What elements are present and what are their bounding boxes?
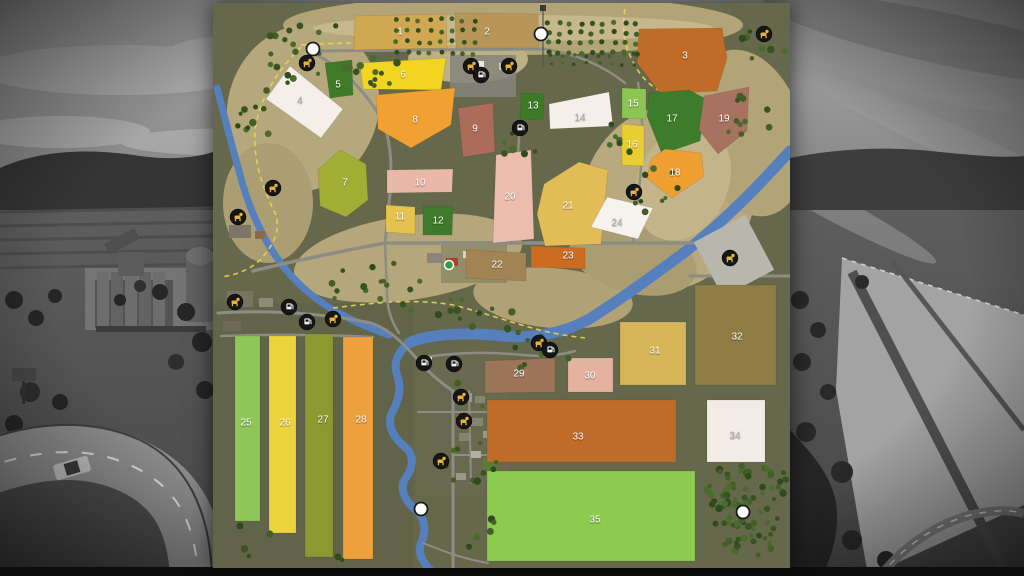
field-28[interactable] xyxy=(343,337,373,559)
orchard-tree xyxy=(633,63,637,67)
tree xyxy=(241,545,248,552)
tree xyxy=(239,112,243,116)
tree xyxy=(459,297,465,303)
orchard-tree xyxy=(450,16,455,21)
tree xyxy=(738,463,745,470)
tree xyxy=(525,338,530,343)
tree xyxy=(718,469,723,474)
tree xyxy=(282,37,287,42)
orchard-tree xyxy=(460,51,465,56)
orchard-tree xyxy=(462,40,467,45)
orchard-tree xyxy=(427,41,432,46)
tree xyxy=(741,535,747,541)
building xyxy=(471,451,481,458)
tree xyxy=(739,131,745,137)
orchard-tree xyxy=(597,54,601,58)
tree xyxy=(756,533,762,539)
orchard-tree xyxy=(470,52,475,57)
tree xyxy=(476,310,482,316)
orchard-tree xyxy=(473,19,478,24)
animal-pen-icon[interactable] xyxy=(265,180,281,196)
tree xyxy=(765,520,771,526)
road xyxy=(308,49,545,51)
orchard-tree xyxy=(555,51,560,56)
orchard-tree xyxy=(620,63,624,67)
service-station-icon[interactable] xyxy=(446,356,462,372)
orchard-tree xyxy=(599,39,604,44)
orchard-tree xyxy=(610,62,614,66)
orchard-tree xyxy=(561,54,565,58)
orchard-tree xyxy=(405,17,410,22)
building xyxy=(456,473,466,480)
tree xyxy=(617,140,623,146)
orchard-tree xyxy=(613,40,618,45)
tree xyxy=(504,325,512,333)
tree xyxy=(455,446,460,451)
field-27[interactable] xyxy=(305,334,333,557)
orchard-tree xyxy=(590,21,595,26)
tree xyxy=(490,306,495,311)
tree xyxy=(372,69,378,75)
tree xyxy=(369,264,375,270)
building xyxy=(229,225,251,238)
field-label-16: 16 xyxy=(626,140,638,151)
tree xyxy=(297,22,304,29)
orchard-tree xyxy=(394,50,399,55)
building xyxy=(223,321,241,331)
orchard-tree xyxy=(459,19,464,24)
tree xyxy=(758,510,763,515)
orchard-tree xyxy=(588,31,593,36)
orchard-tree xyxy=(634,32,639,37)
tree xyxy=(332,296,337,301)
orchard-tree xyxy=(450,51,455,56)
tree xyxy=(334,288,339,293)
tree xyxy=(766,124,773,131)
field-label-35: 35 xyxy=(589,515,601,526)
tree xyxy=(508,308,515,315)
field-label-21: 21 xyxy=(562,201,574,212)
orchard-tree xyxy=(610,49,615,54)
tree xyxy=(764,506,770,512)
orchard-tree xyxy=(549,53,553,57)
tree xyxy=(776,484,781,489)
tree xyxy=(715,505,723,513)
field-label-34: 34 xyxy=(729,431,741,442)
tree xyxy=(494,460,498,464)
tree xyxy=(734,541,738,545)
tree xyxy=(268,51,273,56)
field-label-17: 17 xyxy=(666,114,678,125)
orchard-tree xyxy=(438,39,443,44)
orchard-tree xyxy=(633,42,638,47)
tree xyxy=(777,479,783,485)
service-station-icon[interactable] xyxy=(473,67,489,83)
field-label-25: 25 xyxy=(240,418,252,429)
field-label-26: 26 xyxy=(279,418,291,429)
orchard-tree xyxy=(561,61,565,65)
field-label-19: 19 xyxy=(718,114,730,125)
tree xyxy=(265,130,272,137)
tree xyxy=(447,308,453,314)
tree xyxy=(749,533,753,537)
tree xyxy=(408,307,414,313)
tree xyxy=(333,23,338,28)
tree xyxy=(236,522,243,529)
orchard-tree xyxy=(608,55,612,59)
tree xyxy=(458,316,462,320)
tree xyxy=(742,119,748,125)
tree xyxy=(360,283,367,290)
tree xyxy=(642,172,648,178)
tree xyxy=(469,323,476,330)
animal-pen-icon[interactable] xyxy=(227,294,243,310)
service-station-icon[interactable] xyxy=(299,314,315,330)
tree xyxy=(285,80,290,85)
field-label-30: 30 xyxy=(584,371,596,382)
tree xyxy=(417,279,422,284)
field-label-31: 31 xyxy=(649,346,661,357)
orchard-tree xyxy=(599,29,604,34)
orchard-tree xyxy=(450,38,455,43)
orchard-tree xyxy=(472,27,477,32)
field-23[interactable] xyxy=(531,246,585,269)
tree xyxy=(707,491,711,495)
tree xyxy=(711,498,717,504)
animal-pen-icon[interactable] xyxy=(456,413,472,429)
service-station-icon[interactable] xyxy=(512,120,528,136)
orchard-tree xyxy=(572,62,576,66)
animal-pen-icon[interactable] xyxy=(433,453,449,469)
tree xyxy=(379,71,384,76)
orchard-tree xyxy=(567,40,572,45)
orchard-tree xyxy=(566,50,571,55)
field-label-22: 22 xyxy=(491,260,503,271)
orchard-tree xyxy=(578,40,583,45)
orchard-tree xyxy=(405,28,410,33)
tree xyxy=(487,528,494,535)
orchard-tree xyxy=(417,41,422,46)
orchard-tree xyxy=(573,53,577,57)
tree xyxy=(708,484,712,488)
tree xyxy=(466,544,472,550)
tree xyxy=(726,130,731,135)
tree xyxy=(759,484,765,490)
tree xyxy=(726,538,733,545)
tree xyxy=(491,466,497,472)
tree xyxy=(387,81,392,86)
orchard-tree xyxy=(566,21,571,26)
tree xyxy=(751,538,757,544)
orchard-tree xyxy=(556,39,561,44)
orchard-tree xyxy=(426,51,431,56)
tree xyxy=(509,146,516,153)
tree xyxy=(639,199,644,204)
orchard-tree xyxy=(440,50,445,55)
poi-marker-icon[interactable] xyxy=(737,506,750,519)
tree xyxy=(533,149,538,154)
service-station-icon[interactable] xyxy=(416,355,432,371)
tree xyxy=(473,533,480,540)
orchard-tree xyxy=(416,28,421,33)
tree xyxy=(453,306,461,314)
map-svg: 1234567891011121314151617181920212223242… xyxy=(213,3,790,568)
tree xyxy=(263,87,270,94)
tree xyxy=(756,552,761,557)
field-label-9: 9 xyxy=(472,124,478,135)
tree xyxy=(608,122,614,128)
tree xyxy=(726,476,731,481)
tree xyxy=(723,492,730,499)
tree xyxy=(512,345,518,351)
tree xyxy=(607,142,613,148)
orchard-tree xyxy=(600,22,605,27)
poi-marker-icon[interactable] xyxy=(307,43,320,56)
tree xyxy=(368,80,373,85)
building xyxy=(259,298,273,307)
field-label-32: 32 xyxy=(731,332,743,343)
field-label-5: 5 xyxy=(335,80,341,91)
animal-pen-icon[interactable] xyxy=(299,55,315,71)
tree xyxy=(286,27,292,33)
animal-pen-icon[interactable] xyxy=(626,184,642,200)
tree xyxy=(346,65,353,72)
tree xyxy=(633,201,638,206)
orchard-tree xyxy=(558,20,563,25)
tree xyxy=(738,122,743,127)
tree xyxy=(503,140,507,144)
field-label-3: 3 xyxy=(682,51,688,62)
tree xyxy=(767,46,774,53)
tree xyxy=(454,380,461,387)
tree xyxy=(273,64,280,71)
tree xyxy=(782,48,788,54)
tree xyxy=(292,49,298,55)
tree xyxy=(650,165,657,172)
field-label-15: 15 xyxy=(627,99,639,110)
tree xyxy=(246,125,251,130)
field-label-12: 12 xyxy=(432,216,444,227)
tree xyxy=(316,29,322,35)
tree xyxy=(771,525,777,531)
orchard-tree xyxy=(578,29,583,34)
tree xyxy=(284,72,291,79)
tree xyxy=(235,123,240,128)
animal-pen-icon[interactable] xyxy=(756,26,772,42)
animal-pen-icon[interactable] xyxy=(325,311,341,327)
orchard-tree xyxy=(632,52,636,56)
tree xyxy=(745,473,752,480)
tree xyxy=(713,521,719,527)
tree xyxy=(759,45,766,52)
tree xyxy=(772,497,776,501)
field-label-20: 20 xyxy=(504,192,516,203)
tree xyxy=(781,470,786,475)
orchard-tree xyxy=(635,52,640,57)
tree xyxy=(501,150,508,157)
tree xyxy=(340,558,345,563)
tree xyxy=(356,62,364,70)
tree xyxy=(316,72,320,76)
tree xyxy=(480,470,486,476)
orchard-tree xyxy=(557,32,562,37)
building xyxy=(255,231,265,239)
tree xyxy=(391,261,396,266)
tree xyxy=(660,199,664,203)
building xyxy=(475,396,485,403)
field-label-8: 8 xyxy=(412,115,418,126)
orchard-tree xyxy=(407,49,412,54)
orchard-tree xyxy=(405,38,410,43)
poi-marker-icon[interactable] xyxy=(415,503,428,516)
building xyxy=(427,253,443,263)
tree xyxy=(372,77,377,82)
orchard-tree xyxy=(393,39,398,44)
orchard-tree xyxy=(429,28,434,33)
tree xyxy=(449,297,453,301)
tree xyxy=(515,330,521,336)
field-label-13: 13 xyxy=(527,101,539,112)
tree xyxy=(767,471,774,478)
tree xyxy=(763,536,768,541)
tree xyxy=(768,532,773,537)
tree xyxy=(769,485,774,490)
orchard-tree xyxy=(415,19,420,24)
tree xyxy=(474,477,481,484)
orchard-tree xyxy=(622,40,627,45)
orchard-tree xyxy=(473,40,478,45)
orchard-tree xyxy=(579,51,584,56)
tree xyxy=(751,520,757,526)
tree xyxy=(393,59,401,67)
start-marker-icon[interactable] xyxy=(445,261,454,270)
tree xyxy=(782,476,789,483)
orchard-tree xyxy=(568,30,573,35)
tree xyxy=(400,302,406,308)
tree xyxy=(369,55,376,62)
tree xyxy=(435,311,442,318)
field-label-33: 33 xyxy=(572,432,584,443)
tree xyxy=(353,68,360,75)
field-2[interactable] xyxy=(455,13,539,48)
field-label-24: 24 xyxy=(611,218,623,229)
field-label-28: 28 xyxy=(355,415,367,426)
field-label-2: 2 xyxy=(484,27,490,38)
tree xyxy=(241,106,248,113)
tree xyxy=(451,477,456,482)
service-station-icon[interactable] xyxy=(542,342,558,358)
tree xyxy=(247,554,251,558)
building xyxy=(459,433,469,441)
tree xyxy=(384,282,389,287)
tree xyxy=(735,98,740,103)
field-label-27: 27 xyxy=(317,415,329,426)
tree xyxy=(372,83,377,88)
field-label-10: 10 xyxy=(414,178,426,189)
tree xyxy=(267,32,274,39)
service-station-icon[interactable] xyxy=(281,299,297,315)
poi-marker-icon[interactable] xyxy=(535,28,548,41)
orchard-tree xyxy=(545,20,550,25)
orchard-tree xyxy=(598,61,602,65)
background-bottom-strip xyxy=(0,567,1024,576)
orchard-tree xyxy=(439,30,444,35)
field-label-7: 7 xyxy=(342,178,348,189)
tree xyxy=(775,516,780,521)
tree xyxy=(733,497,738,502)
tree xyxy=(739,35,746,42)
tree xyxy=(642,208,649,215)
tree xyxy=(740,95,747,102)
tree xyxy=(407,286,413,292)
farm-map-overlay: 1234567891011121314151617181920212223242… xyxy=(213,3,790,568)
orchard-tree xyxy=(624,20,629,25)
orchard-tree xyxy=(450,29,455,34)
tree xyxy=(379,279,383,283)
tree xyxy=(290,41,296,47)
tree xyxy=(565,355,571,361)
tree xyxy=(725,472,730,477)
field-label-29: 29 xyxy=(513,369,525,380)
tree xyxy=(780,490,787,497)
orchard-tree xyxy=(439,16,444,21)
tree xyxy=(253,105,258,110)
orchard-tree xyxy=(585,61,589,65)
animal-pen-icon[interactable] xyxy=(453,389,469,405)
orchard-tree xyxy=(428,17,433,22)
tree xyxy=(249,119,256,126)
orchard-tree xyxy=(460,28,465,33)
powerline-pole xyxy=(540,5,546,11)
field-label-18: 18 xyxy=(669,168,681,179)
tree xyxy=(727,515,733,521)
orchard-tree xyxy=(546,39,551,44)
tree xyxy=(751,527,755,531)
tree xyxy=(750,56,755,61)
tree xyxy=(521,150,528,157)
orchard-tree xyxy=(550,62,554,66)
screenshot-root: 1234567891011121314151617181920212223242… xyxy=(0,0,1024,576)
tree xyxy=(722,500,728,506)
orchard-tree xyxy=(633,21,638,26)
field-label-1: 1 xyxy=(397,27,403,38)
orchard-tree xyxy=(599,50,604,55)
tree xyxy=(268,62,273,67)
orchard-tree xyxy=(394,17,399,22)
tree xyxy=(726,483,733,490)
orchard-tree xyxy=(624,31,629,36)
tree xyxy=(675,185,681,191)
tree xyxy=(750,495,756,501)
orchard-tree xyxy=(590,50,595,55)
animal-pen-icon[interactable] xyxy=(230,209,246,225)
tree xyxy=(266,530,273,537)
field-25[interactable] xyxy=(235,336,260,521)
field-26[interactable] xyxy=(269,336,296,533)
orchard-tree xyxy=(623,53,627,57)
animal-pen-icon[interactable] xyxy=(501,58,517,74)
tree xyxy=(760,491,765,496)
field-label-11: 11 xyxy=(395,212,406,223)
animal-pen-icon[interactable] xyxy=(722,250,738,266)
tree xyxy=(743,486,748,491)
tree xyxy=(329,280,336,287)
orchard-tree xyxy=(580,22,585,27)
tree xyxy=(721,520,727,526)
tree xyxy=(491,520,496,525)
field-label-4: 4 xyxy=(297,96,303,107)
tree xyxy=(767,545,774,552)
